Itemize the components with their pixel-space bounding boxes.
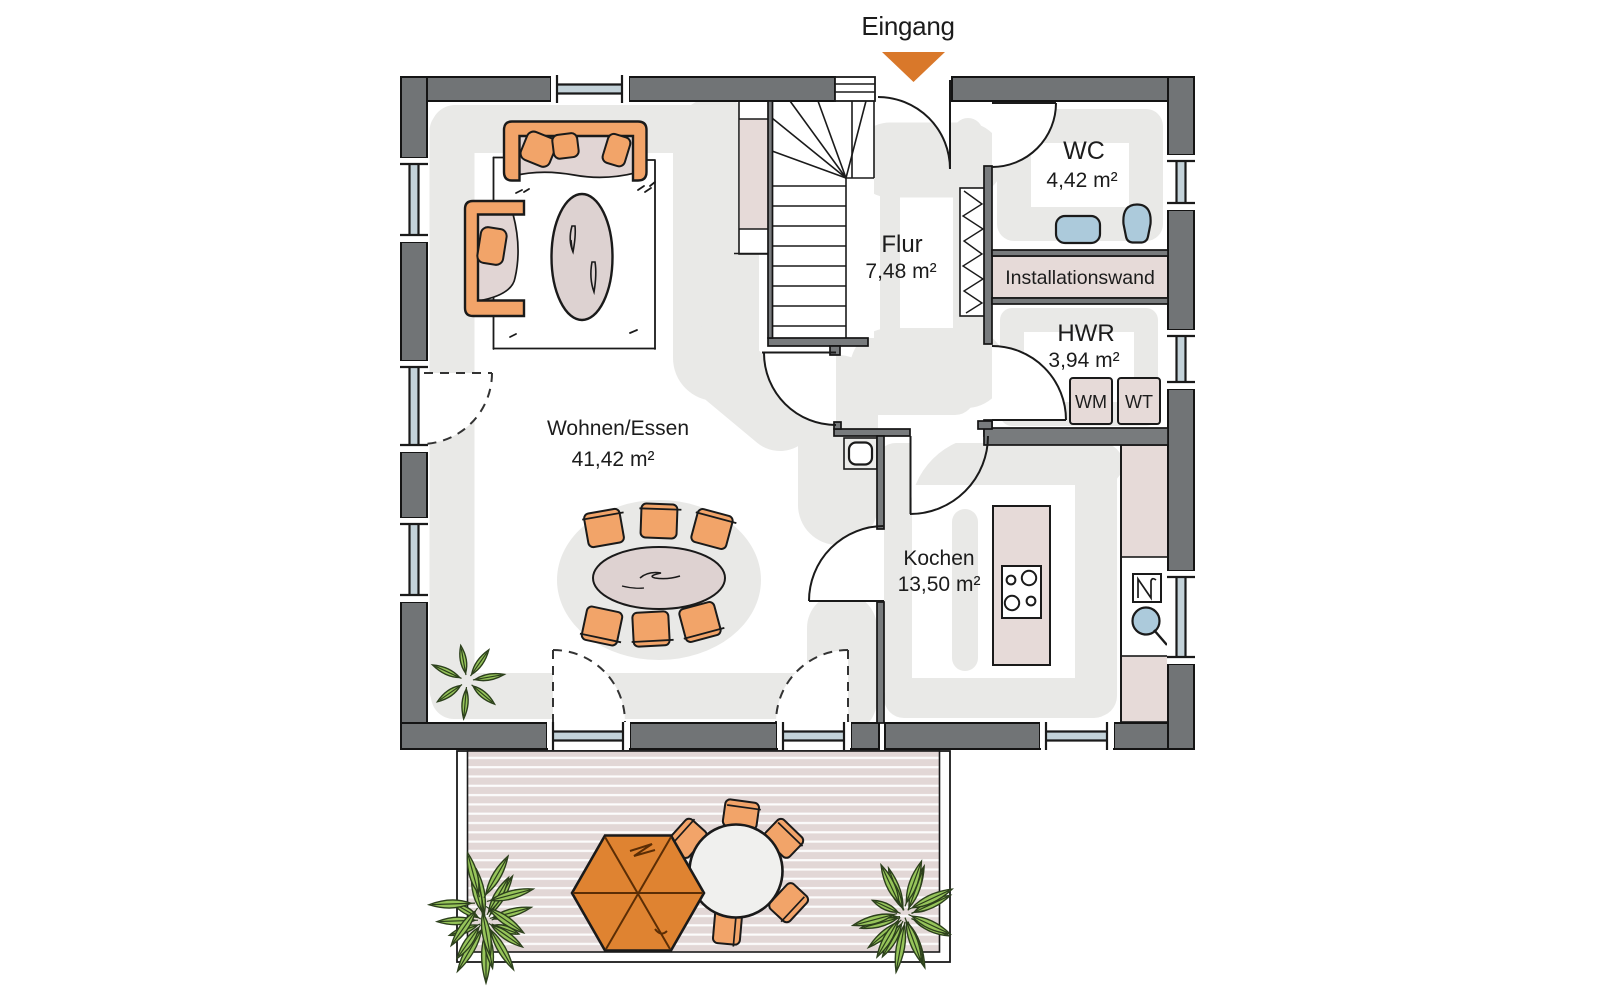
svg-text:WM: WM (1075, 392, 1107, 412)
svg-text:WT: WT (1125, 392, 1153, 412)
svg-text:Eingang: Eingang (861, 11, 954, 41)
svg-text:HWR: HWR (1057, 320, 1114, 347)
svg-text:7,48 m²: 7,48 m² (865, 260, 936, 283)
svg-text:WC: WC (1063, 137, 1105, 165)
svg-text:3,94 m²: 3,94 m² (1048, 349, 1119, 372)
svg-text:4,42 m²: 4,42 m² (1046, 169, 1117, 192)
svg-text:Installationswand: Installationswand (1005, 267, 1155, 289)
svg-text:41,42 m²: 41,42 m² (572, 448, 655, 471)
svg-text:Flur: Flur (881, 231, 922, 258)
svg-text:Kochen: Kochen (903, 547, 974, 570)
svg-text:13,50 m²: 13,50 m² (898, 573, 981, 596)
svg-text:Wohnen/Essen: Wohnen/Essen (547, 417, 689, 440)
